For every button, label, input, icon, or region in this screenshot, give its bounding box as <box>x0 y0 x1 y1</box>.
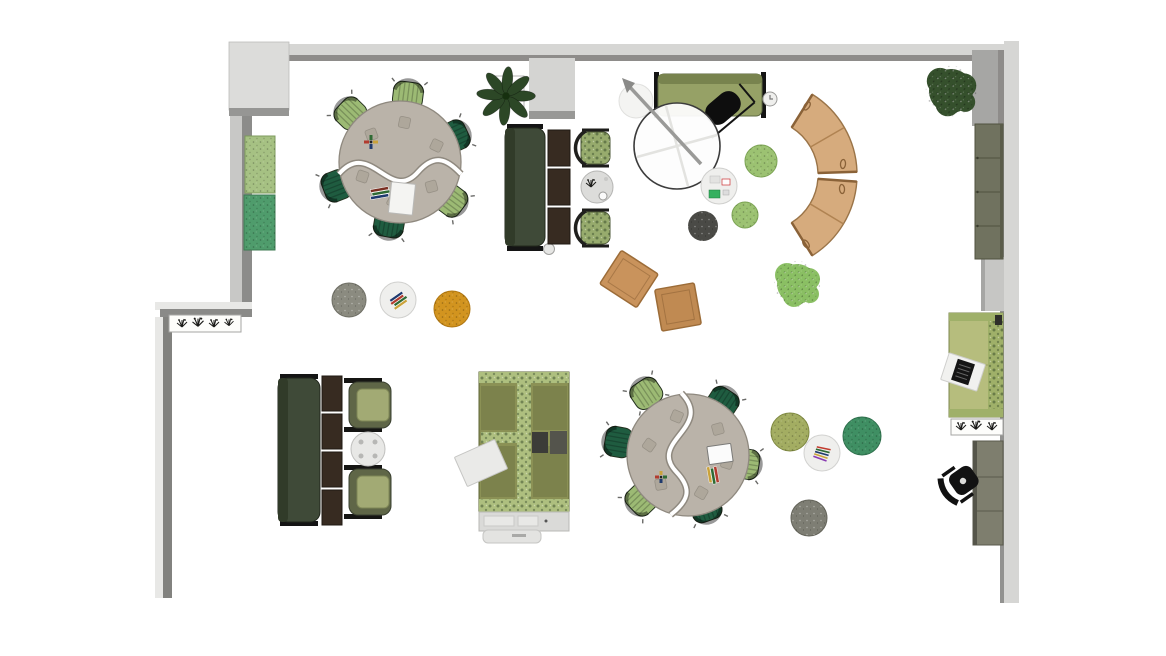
daybed-east <box>941 313 1003 417</box>
floor-plan-image <box>0 0 1166 656</box>
media-lounge-center <box>600 72 820 331</box>
wall-right <box>1004 41 1019 603</box>
wall-pier-ne-edge <box>998 50 1005 126</box>
pouf-cluster-west <box>332 282 470 327</box>
planter-box-east <box>951 419 1003 435</box>
booth-table-dark <box>532 432 548 453</box>
curved-bench-east <box>792 94 857 255</box>
lounge-north <box>505 124 613 255</box>
wall-left-lower-outer <box>155 317 163 598</box>
paper-lamp <box>619 84 653 118</box>
wall-top <box>233 44 1005 56</box>
planter-box-west <box>169 315 241 332</box>
wall-step-outer <box>155 302 252 310</box>
bench-segment-1 <box>792 94 857 173</box>
desk-east <box>973 441 1003 545</box>
wall-partition-stub <box>529 58 575 114</box>
side-table-round <box>581 171 613 203</box>
daybed-cushion-dark <box>995 315 1002 325</box>
booth-console <box>479 512 569 543</box>
lounge-southwest <box>278 374 391 526</box>
table-whiteboard <box>707 443 733 464</box>
table-notepad <box>388 182 415 215</box>
serpentine-table-southeast <box>600 370 764 528</box>
wall-left-upper-outer <box>230 116 242 310</box>
wall-pier-northwest <box>229 42 289 110</box>
wicker-chair <box>575 130 610 166</box>
round-table-southwest <box>351 432 385 466</box>
armchair-olive <box>344 378 391 432</box>
wall-top-inner-edge <box>233 55 1005 61</box>
booth-table-gray <box>550 431 567 454</box>
pouf-cluster-east <box>771 413 881 536</box>
tree-northeast <box>926 66 977 117</box>
caster <box>544 244 555 255</box>
floor-cushion-1 <box>600 250 659 308</box>
wall-left-lower <box>163 317 172 598</box>
serpentine-table-northwest <box>316 78 477 242</box>
wall-panels-west <box>244 136 275 250</box>
wall-pier-edge <box>229 108 289 116</box>
bench-segment-2 <box>792 179 857 256</box>
coffee-table-center <box>701 168 737 204</box>
side-tables-southwest <box>322 376 342 525</box>
floor-cushion-2 <box>655 283 702 331</box>
wicker-chair <box>575 210 610 246</box>
armchair-olive <box>344 465 391 519</box>
leaf-plant-icon <box>476 66 535 125</box>
booth-south <box>454 372 569 543</box>
wall-partition-edge <box>529 111 575 119</box>
storage-cabinet-east <box>975 124 1003 259</box>
wall-clock-icon <box>763 92 777 106</box>
side-tables-north <box>548 130 570 244</box>
fluffy-plant <box>774 261 820 307</box>
plant-north <box>476 66 535 125</box>
wall-right-segment-edge <box>981 257 985 311</box>
